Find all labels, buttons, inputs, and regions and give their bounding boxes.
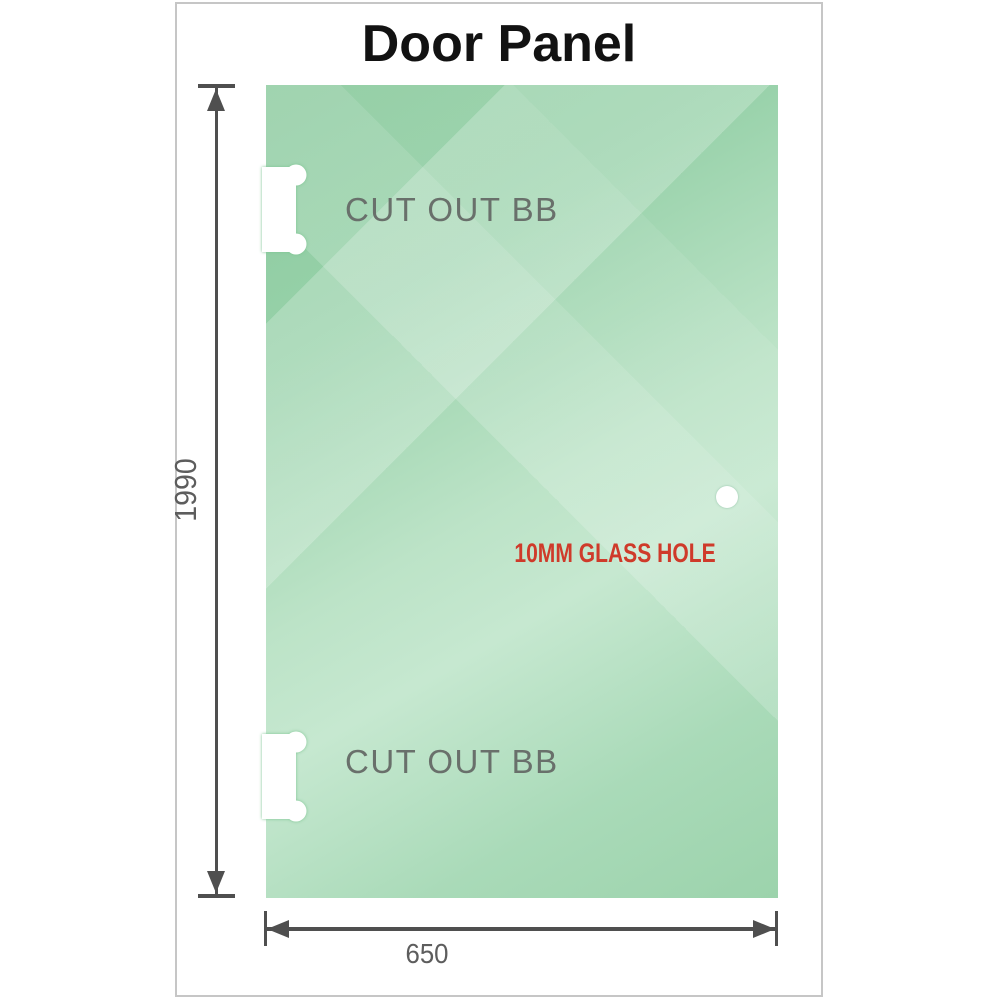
height-dimension-line <box>215 86 218 896</box>
width-arrowhead-left-icon <box>267 920 289 938</box>
height-dimension-cap-top <box>198 84 235 88</box>
width-arrowhead-right-icon <box>753 920 775 938</box>
width-dimension-tick-right <box>775 911 778 946</box>
width-dimension-line <box>266 927 776 931</box>
page-title: Door Panel <box>175 14 823 74</box>
height-dimension-value: 1990 <box>169 435 203 545</box>
height-arrowhead-up-icon <box>207 89 225 111</box>
hinge-cutout-top-icon <box>262 163 314 257</box>
glass-hole-label: 10MM GLASS HOLE <box>490 538 740 569</box>
hinge-cutout-bottom-icon <box>262 730 314 824</box>
height-dimension-cap-bottom <box>198 894 235 898</box>
width-dimension-value: 650 <box>381 938 473 970</box>
cutout-label-bottom: CUT OUT BB <box>345 745 559 779</box>
glass-hole-icon <box>716 486 738 508</box>
cutout-label-top: CUT OUT BB <box>345 193 559 227</box>
height-arrowhead-down-icon <box>207 871 225 893</box>
